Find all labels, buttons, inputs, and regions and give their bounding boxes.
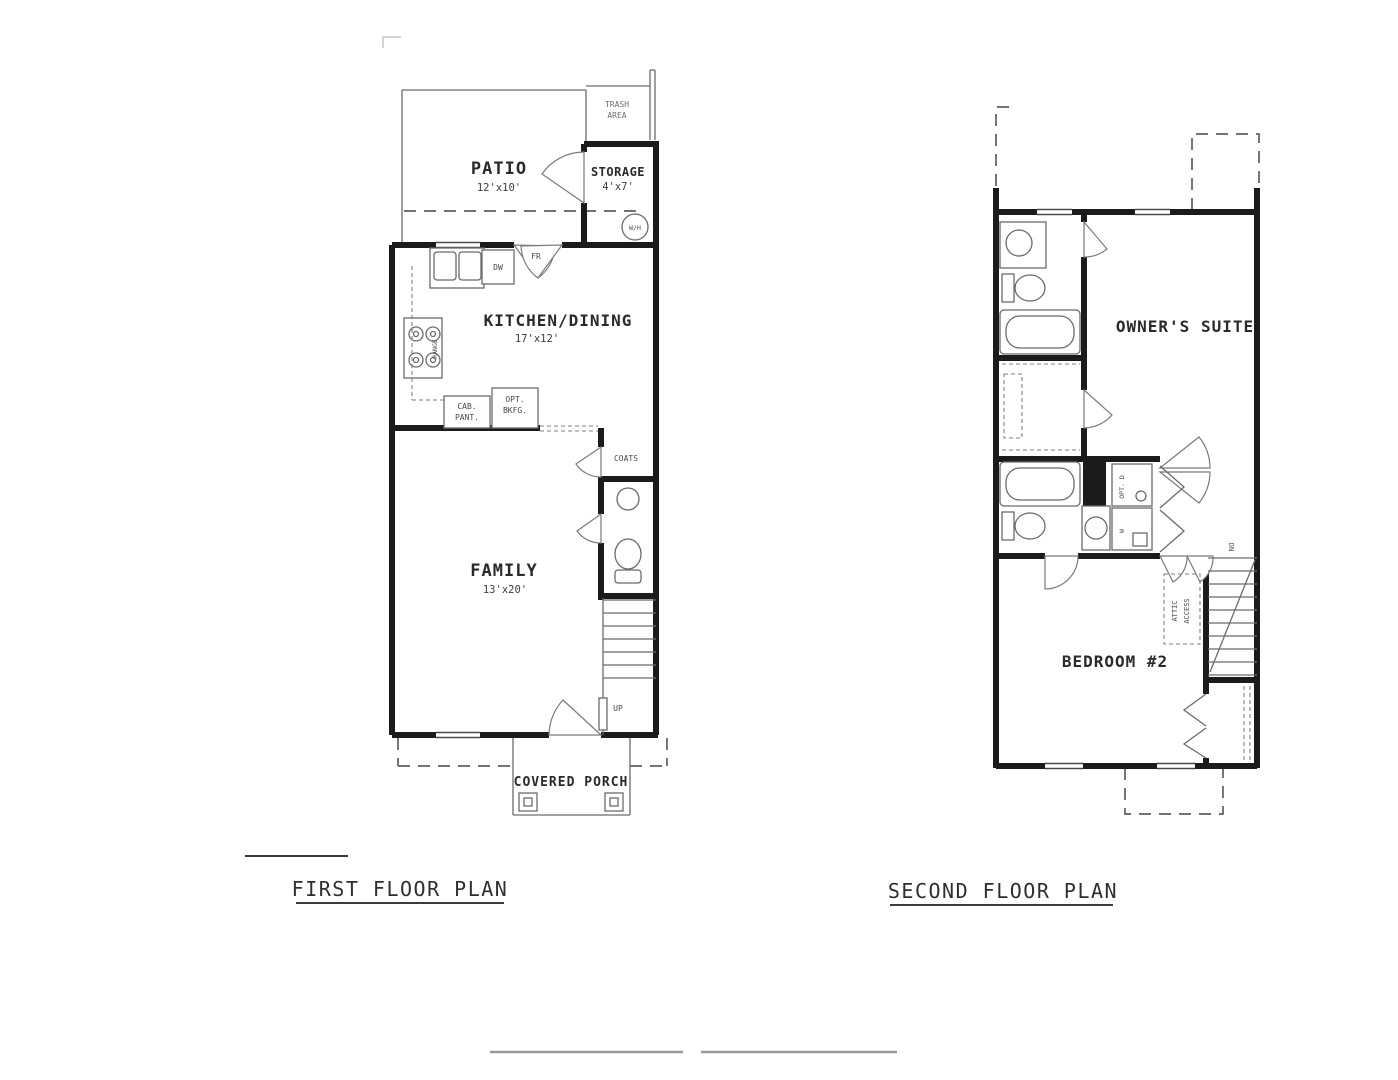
- family-window: [436, 733, 480, 738]
- front-door: [549, 700, 601, 735]
- floor-plan-sheet: PATIO 12'x10' TRASH AREA STORAGE 4'x7' W…: [0, 0, 1398, 1080]
- attic-access-box: [1164, 574, 1200, 644]
- corner-mark: [383, 37, 401, 48]
- cabinet-pantry: [444, 396, 490, 428]
- opt-bkfg-label-1: OPT.: [505, 395, 524, 404]
- water-heater-label: W/H: [629, 224, 641, 232]
- storage-dims: 4'x7': [602, 181, 634, 193]
- toilet-bowl-1: [1015, 275, 1045, 301]
- stairs-down-label: DN: [1227, 543, 1235, 551]
- french-door-label: FR: [531, 252, 541, 261]
- owners-closet-door: [1084, 390, 1112, 428]
- attic-access-label-2: ACCESS: [1183, 598, 1191, 623]
- coats-door: [576, 447, 601, 477]
- trash-area-label-1: TRASH: [605, 100, 629, 109]
- washer: [1112, 508, 1152, 550]
- first-floor-windows: [436, 243, 480, 738]
- cased-opening: [540, 426, 598, 431]
- owners-suite-window-2: [1135, 210, 1170, 215]
- second-floor-title: SECOND FLOOR PLAN: [888, 879, 1118, 903]
- family-label: FAMILY: [470, 561, 537, 581]
- patio-dims: 12'x10': [477, 182, 521, 194]
- dishwasher-label: DW: [493, 263, 503, 272]
- toilet-bowl: [615, 539, 641, 569]
- sink-2: [1085, 517, 1107, 539]
- bedroom2-window-1: [1045, 764, 1083, 769]
- kitchen-window: [436, 243, 480, 248]
- sink-bowl-left: [434, 252, 456, 280]
- powder-room-fixtures: [615, 488, 641, 583]
- family-dims: 13'x20': [483, 584, 527, 596]
- kitchen-dining-dims: 17'x12': [515, 333, 559, 345]
- stairs-up-label: UP: [613, 704, 623, 713]
- first-floor-doors: [514, 152, 601, 735]
- first-floor-title: FIRST FLOOR PLAN: [292, 877, 509, 901]
- bedroom2-door-leaf-2: [1187, 556, 1213, 582]
- floor-plan-drawing: PATIO 12'x10' TRASH AREA STORAGE 4'x7' W…: [0, 0, 1398, 1080]
- opt-dryer-label: OPT. D: [1118, 475, 1126, 499]
- owners-bath-fixtures: [1000, 222, 1080, 354]
- covered-porch-label: COVERED PORCH: [514, 775, 629, 790]
- toilet-bowl-2: [1015, 513, 1045, 539]
- cab-pantry-label-1: CAB.: [457, 402, 476, 411]
- opt-bkfg-label-2: BKFG.: [503, 406, 527, 415]
- bedroom2-door-leaf-1: [1160, 556, 1187, 582]
- first-floor-stairs: [599, 598, 656, 735]
- storage-door: [542, 152, 584, 203]
- kitchen-dining-label: KITCHEN/DINING: [484, 311, 633, 330]
- fence-line: [650, 70, 655, 140]
- toilet-tank-1: [1002, 274, 1014, 302]
- owners-suite-door-leaf-down: [1160, 472, 1210, 503]
- hall-bath-door: [1045, 556, 1078, 589]
- roof-dashed-top-right: [1192, 134, 1259, 210]
- bedroom2-label: BEDROOM #2: [1062, 652, 1168, 671]
- toilet-tank-2: [1002, 512, 1014, 540]
- chase: [1083, 461, 1106, 506]
- porch-property-dashed-line: [398, 738, 667, 766]
- toilet-tank: [615, 570, 641, 583]
- bedroom2-closet-shelf: [1244, 686, 1250, 762]
- first-floor-plan: PATIO 12'x10' TRASH AREA STORAGE 4'x7' W…: [383, 37, 667, 815]
- first-floor-exterior-walls: [392, 141, 659, 735]
- closet-shelf-dashed: [1004, 374, 1022, 438]
- owners-closet: [1002, 364, 1080, 450]
- french-door-right-leaf: [521, 245, 562, 278]
- owners-bath-door: [1084, 222, 1107, 257]
- cab-pantry-label-2: PANT.: [455, 413, 479, 422]
- range-label: RANGE: [431, 339, 439, 359]
- porch-post-right: [605, 793, 623, 811]
- owners-suite-label: OWNER'S SUITE: [1116, 317, 1254, 336]
- patio-outline: [402, 70, 655, 243]
- patio-label: PATIO: [471, 159, 527, 179]
- trash-area-label-2: AREA: [607, 111, 626, 120]
- porch-roof-dashed: [1125, 768, 1223, 814]
- roof-dashed-top-left: [996, 107, 1009, 186]
- storage-label: STORAGE: [591, 165, 645, 179]
- porch-post-left: [519, 793, 537, 811]
- attic-access-label-1: ATTIC: [1171, 600, 1179, 621]
- owners-suite-window-1: [1037, 210, 1072, 215]
- stair-newel: [599, 698, 607, 730]
- powder-sink: [617, 488, 639, 510]
- owners-suite-door-leaf-up: [1160, 437, 1210, 468]
- bedroom2-window-2: [1157, 764, 1195, 769]
- titles: FIRST FLOOR PLAN SECOND FLOOR PLAN: [245, 856, 1118, 1052]
- sink-bowl-right: [459, 252, 481, 280]
- powder-door: [577, 514, 601, 543]
- sink-1: [1006, 230, 1032, 256]
- second-floor-plan: OWNER'S SUITE BEDROOM #2 ATTIC ACCESS DN…: [996, 107, 1259, 814]
- coats-label: COATS: [614, 454, 638, 463]
- bedroom2-closet-bifold-doors: [1184, 694, 1206, 758]
- second-floor-stairs: [1208, 558, 1257, 675]
- washer-label: W: [1118, 529, 1126, 533]
- stair-break-line: [1210, 560, 1255, 672]
